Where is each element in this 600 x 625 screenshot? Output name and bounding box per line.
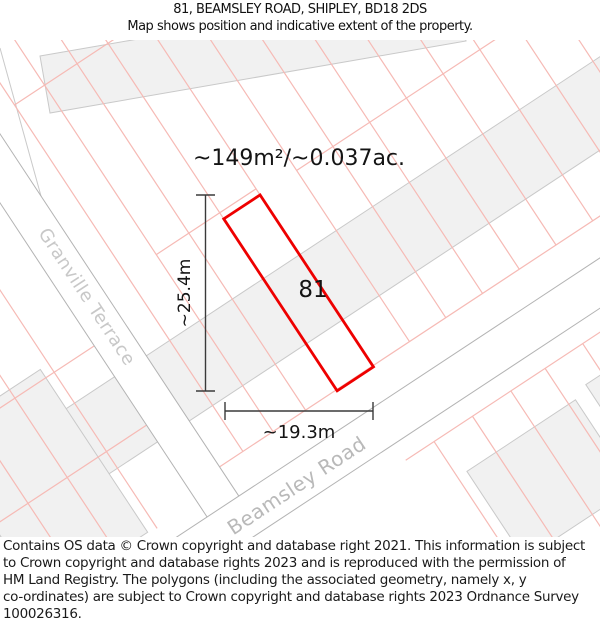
property-map: Granville Terrace Beamsley Road ~149m²/~… — [0, 40, 600, 537]
width-dimension-label: ~19.3m — [263, 422, 336, 443]
building-band-top — [40, 40, 466, 113]
width-bracket — [225, 402, 373, 420]
copyright-line: 100026316. — [3, 606, 600, 623]
copyright-line: to Crown copyright and database rights 2… — [3, 555, 600, 572]
copyright-line: co-ordinates) are subject to Crown copyr… — [3, 589, 600, 606]
copyright-notice: Contains OS data © Crown copyright and d… — [0, 538, 600, 623]
map-subtitle: Map shows position and indicative extent… — [0, 19, 600, 36]
copyright-line: Contains OS data © Crown copyright and d… — [3, 538, 600, 555]
title-block: 81, BEAMSLEY ROAD, SHIPLEY, BD18 2DS Map… — [0, 0, 600, 40]
page-title: 81, BEAMSLEY ROAD, SHIPLEY, BD18 2DS — [0, 2, 600, 19]
street-label-granville: Granville Terrace — [34, 224, 140, 369]
street-label-beamsley: Beamsley Road — [223, 431, 371, 537]
height-dimension-label: ~25.4m — [175, 259, 195, 328]
page: 81, BEAMSLEY ROAD, SHIPLEY, BD18 2DS Map… — [0, 0, 600, 625]
plot-number-label: 81 — [298, 277, 327, 303]
area-label: ~149m²/~0.037ac. — [193, 146, 405, 171]
copyright-line: HM Land Registry. The polygons (includin… — [3, 572, 600, 589]
